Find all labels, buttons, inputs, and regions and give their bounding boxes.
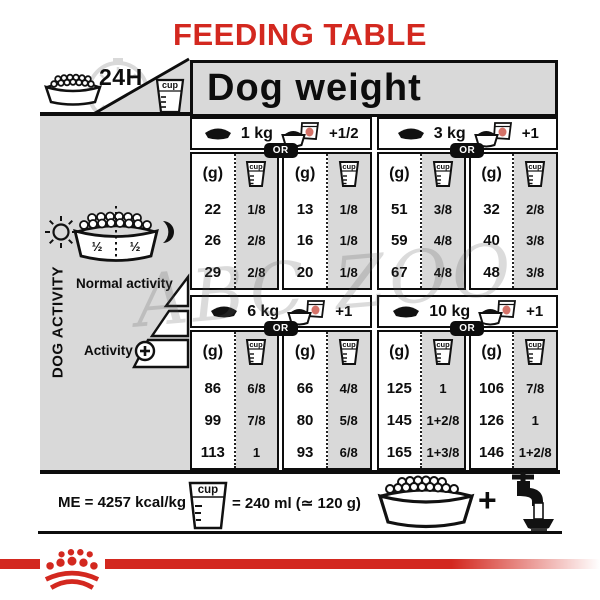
data-section-1kg: (g) 22 26 29 cup 1/8 2/8 xyxy=(190,152,372,290)
data-section-6kg: (g) 86 99 113 cup 6/8 7/8 xyxy=(190,330,372,470)
brand-stripe xyxy=(105,559,600,569)
grams-value: 146 xyxy=(471,436,513,468)
page-title: FEEDING TABLE xyxy=(0,17,600,53)
cup-value: 1 xyxy=(236,436,278,468)
data-section-10kg: (g) 125 145 165 cup 1 1+2 xyxy=(377,330,559,470)
grams-value: 40 xyxy=(471,225,513,256)
brand-stripe xyxy=(0,559,40,569)
grams-value: 165 xyxy=(379,436,421,468)
grams-value: 66 xyxy=(284,372,326,404)
svg-text:cup: cup xyxy=(529,162,543,171)
cup-value: 2/8 xyxy=(236,225,278,256)
or-badge: OR xyxy=(450,143,484,158)
cup-value: 1/8 xyxy=(328,194,370,225)
grams-header: (g) xyxy=(192,332,234,372)
measuring-cup-icon: cup xyxy=(184,476,232,534)
dry-plus-wet-column: (g) 66 80 93 cup 4/8 5/8 xyxy=(282,330,371,470)
svg-text:cup: cup xyxy=(529,340,543,349)
cup-value: 6/8 xyxy=(236,372,278,404)
dry-only-column: (g) 86 99 113 cup 6/8 7/8 xyxy=(190,330,279,470)
cup-value: 4/8 xyxy=(422,257,464,288)
weight-section-1kg: 1 kg +1/2 OR xyxy=(190,117,372,150)
cup-value: 6/8 xyxy=(328,436,370,468)
cup-value: 3/8 xyxy=(514,225,556,256)
grams-value: 20 xyxy=(284,257,326,288)
plus-circle-icon xyxy=(136,342,154,360)
cup-header: cup xyxy=(236,154,278,194)
grams-value: 126 xyxy=(471,404,513,436)
grams-header: (g) xyxy=(379,332,421,372)
cup-value: 1 xyxy=(422,372,464,404)
dry-plus-wet-column: (g) 13 16 20 cup 1/8 1/8 xyxy=(282,152,371,290)
grams-value: 16 xyxy=(284,225,326,256)
grams-value: 113 xyxy=(192,436,234,468)
measuring-cup-icon: cup xyxy=(243,336,269,368)
cup-value: 3/8 xyxy=(422,194,464,225)
grams-value: 80 xyxy=(284,404,326,436)
cup-value: 1/8 xyxy=(328,257,370,288)
weight-label: 3 kg xyxy=(434,125,466,143)
cup-value: 1/8 xyxy=(236,194,278,225)
cup-value: 1+2/8 xyxy=(422,404,464,436)
cup-header: cup xyxy=(422,154,464,194)
grams-value: 93 xyxy=(284,436,326,468)
dry-bowl-icon xyxy=(396,126,426,141)
grams-value: 32 xyxy=(471,194,513,225)
weight-label: 1 kg xyxy=(241,125,273,143)
weight-label: 6 kg xyxy=(247,303,279,321)
grams-value: 59 xyxy=(379,225,421,256)
cup-value: 2/8 xyxy=(236,257,278,288)
grams-value: 48 xyxy=(471,257,513,288)
cup-value: 3/8 xyxy=(514,257,556,288)
grams-value: 86 xyxy=(192,372,234,404)
cup-value: 1/8 xyxy=(328,225,370,256)
dry-plus-wet-column: (g) 32 40 48 cup 2/8 3/8 xyxy=(469,152,558,290)
grams-value: 67 xyxy=(379,257,421,288)
plus-sign: + xyxy=(478,482,497,519)
cup-header: cup xyxy=(328,154,370,194)
dry-bowl-icon xyxy=(391,304,421,319)
grams-header: (g) xyxy=(471,154,513,194)
or-badge: OR xyxy=(264,321,298,336)
measuring-cup-icon: cup xyxy=(430,158,456,190)
cup-value: 1+2/8 xyxy=(514,436,556,468)
dog-weight-header: Dog weight xyxy=(190,60,558,117)
cup-equivalence-label: = 240 ml (≃ 120 g) xyxy=(232,494,361,512)
grams-header: (g) xyxy=(379,154,421,194)
divider-line xyxy=(40,470,560,474)
cup-label: cup xyxy=(162,80,179,90)
dry-only-column: (g) 125 145 165 cup 1 1+2 xyxy=(377,330,466,470)
wet-portion-label: +1 xyxy=(335,303,352,320)
cup-header: cup xyxy=(514,154,556,194)
weight-section-6kg: 6 kg +1 OR xyxy=(190,295,372,328)
cup-value: 5/8 xyxy=(328,404,370,436)
cup-value: 7/8 xyxy=(236,404,278,436)
metabolizable-energy-label: ME = 4257 kcal/kg xyxy=(58,494,186,511)
svg-text:cup: cup xyxy=(250,162,264,171)
cup-header: cup xyxy=(236,332,278,372)
measuring-cup-icon: cup xyxy=(336,336,362,368)
cup-value: 7/8 xyxy=(514,372,556,404)
measuring-cup-icon: cup xyxy=(243,158,269,190)
cup-header: cup xyxy=(514,332,556,372)
cup-value: 1 xyxy=(514,404,556,436)
svg-text:cup: cup xyxy=(250,340,264,349)
daily-ration-label: 24H xyxy=(99,64,143,91)
half-split-bowl-icon: ½ ½ xyxy=(72,204,160,270)
svg-text:cup: cup xyxy=(342,340,356,349)
feeding-table-page: FEEDING TABLE 24H cup xyxy=(0,0,600,600)
divider-line xyxy=(38,531,562,534)
weight-section-3kg: 3 kg +1 OR xyxy=(377,117,559,150)
measuring-cup-icon: cup xyxy=(152,74,188,116)
data-section-3kg: (g) 51 59 67 cup 3/8 4/8 xyxy=(377,152,559,290)
dog-activity-panel: ½ ½ DOG ACTIVITY Normal activity Activit… xyxy=(40,116,190,470)
measuring-cup-icon: cup xyxy=(430,336,456,368)
dry-only-column: (g) 51 59 67 cup 3/8 4/8 xyxy=(377,152,466,290)
dog-activity-title: DOG ACTIVITY xyxy=(50,266,67,378)
grams-value: 13 xyxy=(284,194,326,225)
activity-ramp-icon xyxy=(128,272,190,372)
half-portion-label: ½ xyxy=(92,239,103,254)
data-row-band-2: (g) 86 99 113 cup 6/8 7/8 xyxy=(190,330,558,470)
data-row-band-1: (g) 22 26 29 cup 1/8 2/8 xyxy=(190,152,558,290)
grams-value: 145 xyxy=(379,404,421,436)
dry-bowl-icon xyxy=(203,126,233,141)
water-tap-icon xyxy=(498,472,554,534)
grams-value: 51 xyxy=(379,194,421,225)
grams-value: 125 xyxy=(379,372,421,404)
cup-header: cup xyxy=(422,332,464,372)
svg-text:cup: cup xyxy=(436,340,450,349)
dry-plus-wet-column: (g) 106 126 146 cup 7/8 1 xyxy=(469,330,558,470)
half-portion-label: ½ xyxy=(130,239,141,254)
weight-header-row-2: 6 kg +1 OR 10 kg +1 OR xyxy=(190,295,558,328)
or-badge: OR xyxy=(450,321,484,336)
measuring-cup-icon: cup xyxy=(522,158,548,190)
cup-value: 1+3/8 xyxy=(422,436,464,468)
cup-value: 4/8 xyxy=(328,372,370,404)
cup-value: 2/8 xyxy=(514,194,556,225)
weight-header-row-1: 1 kg +1/2 OR 3 kg +1 OR xyxy=(190,117,558,150)
grams-header: (g) xyxy=(192,154,234,194)
cup-header: cup xyxy=(328,332,370,372)
grams-header: (g) xyxy=(284,154,326,194)
measuring-cup-icon: cup xyxy=(522,336,548,368)
grams-value: 99 xyxy=(192,404,234,436)
grams-value: 29 xyxy=(192,257,234,288)
measuring-cup-icon: cup xyxy=(336,158,362,190)
crown-logo xyxy=(36,546,108,594)
grams-value: 106 xyxy=(471,372,513,404)
svg-text:cup: cup xyxy=(436,162,450,171)
svg-text:cup: cup xyxy=(198,484,218,496)
grams-header: (g) xyxy=(471,332,513,372)
grams-value: 26 xyxy=(192,225,234,256)
moon-icon xyxy=(157,219,179,245)
kibble-bowl-icon xyxy=(44,70,102,108)
wet-portion-label: +1/2 xyxy=(329,125,359,142)
dry-only-column: (g) 22 26 29 cup 1/8 2/8 xyxy=(190,152,279,290)
kibble-bowl-icon xyxy=(376,472,476,532)
wet-portion-label: +1 xyxy=(522,125,539,142)
or-badge: OR xyxy=(264,143,298,158)
svg-text:cup: cup xyxy=(342,162,356,171)
dry-bowl-icon xyxy=(209,304,239,319)
grams-value: 22 xyxy=(192,194,234,225)
grams-header: (g) xyxy=(284,332,326,372)
high-activity-label: Activity xyxy=(84,343,133,358)
cup-value: 4/8 xyxy=(422,225,464,256)
wet-portion-label: +1 xyxy=(526,303,543,320)
weight-label: 10 kg xyxy=(429,303,470,321)
weight-section-10kg: 10 kg +1 OR xyxy=(377,295,559,328)
bowl-pouch-icon xyxy=(478,298,518,326)
